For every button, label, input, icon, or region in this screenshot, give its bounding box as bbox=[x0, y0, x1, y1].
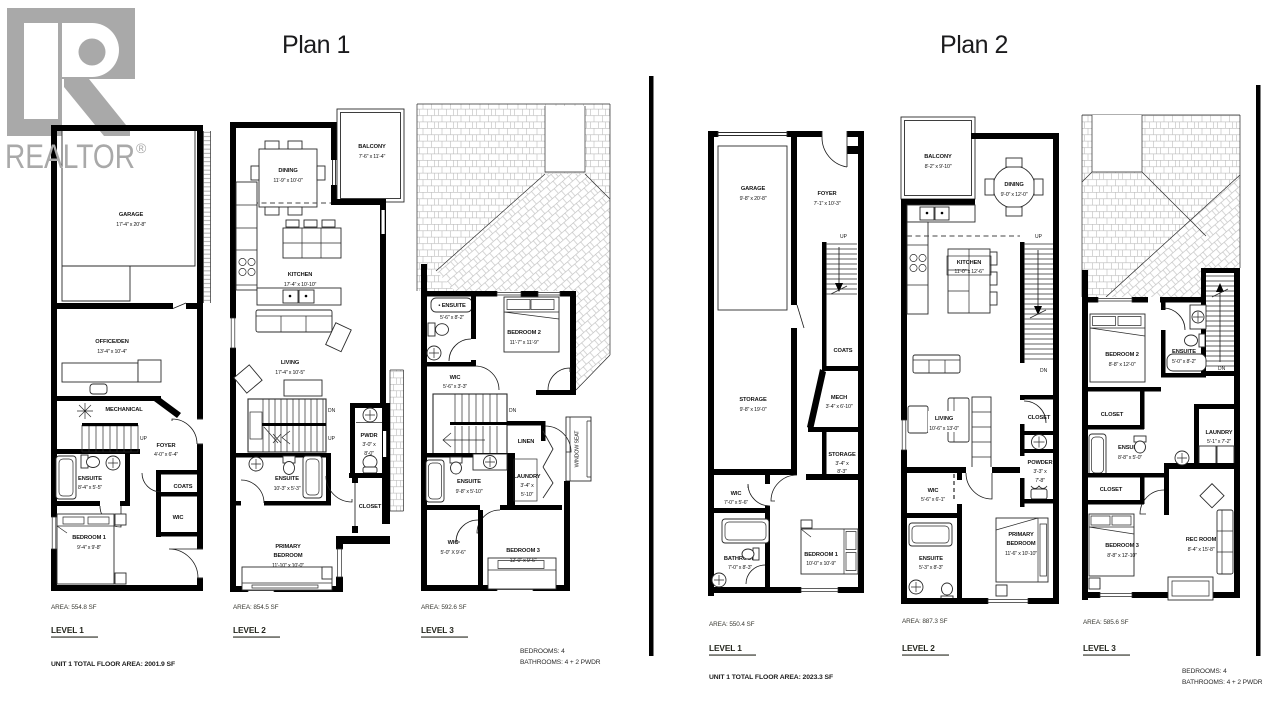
svg-text:11'-10" x 10'-0": 11'-10" x 10'-0" bbox=[272, 563, 304, 569]
svg-text:10'-3" x 5'-3": 10'-3" x 5'-3" bbox=[274, 486, 301, 492]
svg-text:DINING: DINING bbox=[1004, 182, 1024, 188]
svg-text:13'-4" x 10'-4": 13'-4" x 10'-4" bbox=[97, 349, 127, 355]
svg-text:17'-4" x 10'-5": 17'-4" x 10'-5" bbox=[275, 370, 305, 376]
svg-text:AREA: 592.6 SF: AREA: 592.6 SF bbox=[421, 604, 467, 611]
svg-text:DINING: DINING bbox=[278, 168, 298, 174]
svg-text:9'-4" x 9'-8": 9'-4" x 9'-8" bbox=[77, 545, 101, 551]
svg-text:Plan 2: Plan 2 bbox=[940, 31, 1008, 59]
svg-text:BEDROOM 1: BEDROOM 1 bbox=[804, 552, 838, 558]
svg-text:5'-10": 5'-10" bbox=[521, 492, 534, 498]
svg-text:REALTOR: REALTOR bbox=[5, 138, 135, 176]
svg-text:BEDROOM 1: BEDROOM 1 bbox=[72, 535, 106, 541]
svg-text:3'-0" x: 3'-0" x bbox=[362, 442, 376, 448]
svg-text:LIVING: LIVING bbox=[281, 360, 300, 366]
svg-text:REC ROOM: REC ROOM bbox=[1186, 537, 1217, 543]
svg-text:8'-8" x 12'-10": 8'-8" x 12'-10" bbox=[1107, 553, 1137, 559]
svg-text:MECHANICAL: MECHANICAL bbox=[105, 407, 143, 413]
svg-text:AREA: 550.4 SF: AREA: 550.4 SF bbox=[709, 621, 755, 628]
svg-text:LIVING: LIVING bbox=[935, 416, 954, 422]
svg-text:BALCONY: BALCONY bbox=[358, 144, 386, 150]
svg-text:WINDOW SEAT: WINDOW SEAT bbox=[575, 430, 581, 468]
svg-text:WIC: WIC bbox=[173, 515, 184, 521]
svg-text:11'-0" x 12'-6": 11'-0" x 12'-6" bbox=[954, 269, 984, 275]
svg-text:DN: DN bbox=[328, 408, 336, 414]
svg-text:17'-4" x 20'-8": 17'-4" x 20'-8" bbox=[116, 222, 146, 228]
svg-text:5'-3" x 8'-3": 5'-3" x 8'-3" bbox=[919, 565, 943, 571]
svg-text:5'-6" x 3'-3": 5'-6" x 3'-3" bbox=[443, 384, 467, 390]
svg-text:AREA: 585.6 SF: AREA: 585.6 SF bbox=[1083, 619, 1129, 626]
svg-text:5'-6" x 6'-1": 5'-6" x 6'-1" bbox=[921, 497, 945, 503]
svg-text:CLOSET: CLOSET bbox=[1101, 412, 1124, 418]
svg-text:WIC: WIC bbox=[450, 375, 461, 381]
svg-text:8'-4" x 5'-5": 8'-4" x 5'-5" bbox=[78, 485, 102, 491]
svg-text:• ENSUITE: • ENSUITE bbox=[438, 303, 466, 309]
svg-text:8'-8" x 12'-0": 8'-8" x 12'-0" bbox=[1109, 362, 1136, 368]
svg-text:UP: UP bbox=[328, 436, 336, 442]
svg-text:®: ® bbox=[136, 140, 147, 156]
svg-text:Plan 1: Plan 1 bbox=[282, 31, 350, 59]
svg-text:3'-3" x: 3'-3" x bbox=[1033, 469, 1047, 475]
svg-text:DN: DN bbox=[509, 408, 517, 414]
svg-text:9'-0" x 12'-0": 9'-0" x 12'-0" bbox=[1001, 192, 1028, 198]
svg-text:8'-2" x 9'-10": 8'-2" x 9'-10" bbox=[925, 164, 952, 170]
svg-text:STORAGE: STORAGE bbox=[739, 397, 767, 403]
svg-text:GARAGE: GARAGE bbox=[741, 186, 766, 192]
svg-text:BATHROOMS: 4 + 2 PWDR: BATHROOMS: 4 + 2 PWDR bbox=[1182, 679, 1263, 686]
svg-text:3'-4" x 6'-10": 3'-4" x 6'-10" bbox=[826, 404, 853, 410]
svg-text:WIC: WIC bbox=[731, 491, 742, 497]
svg-text:DN: DN bbox=[1218, 366, 1226, 372]
svg-text:LEVEL 1: LEVEL 1 bbox=[709, 643, 742, 653]
svg-text:17'-4" x 10'-10": 17'-4" x 10'-10" bbox=[284, 282, 317, 288]
svg-text:BEDROOM: BEDROOM bbox=[273, 553, 302, 559]
svg-text:5'-6" x 8'-2": 5'-6" x 8'-2" bbox=[440, 315, 464, 321]
svg-text:AREA: 554.8 SF: AREA: 554.8 SF bbox=[51, 604, 97, 611]
svg-text:STORAGE: STORAGE bbox=[828, 452, 856, 458]
svg-text:CLOSET: CLOSET bbox=[1100, 487, 1123, 493]
svg-text:BEDROOMS: 4: BEDROOMS: 4 bbox=[1182, 668, 1227, 675]
svg-text:DN: DN bbox=[1040, 368, 1048, 374]
svg-text:8'-8" x 5'-0": 8'-8" x 5'-0" bbox=[1118, 455, 1142, 461]
svg-text:10'-0" x 10'-9": 10'-0" x 10'-9" bbox=[806, 561, 836, 567]
svg-text:UP: UP bbox=[1035, 234, 1043, 240]
svg-text:8'-4" x 15'-8": 8'-4" x 15'-8" bbox=[1188, 547, 1215, 553]
svg-text:LAUNDRY: LAUNDRY bbox=[1206, 430, 1233, 436]
svg-text:7'-0" x 5'-6": 7'-0" x 5'-6" bbox=[724, 500, 748, 506]
svg-text:9'-8" x 20'-8": 9'-8" x 20'-8" bbox=[740, 196, 767, 202]
svg-text:POWDER: POWDER bbox=[1028, 460, 1053, 466]
svg-text:ENSUITE: ENSUITE bbox=[919, 556, 943, 562]
svg-text:UNIT 1 TOTAL FLOOR AREA: 2001.: UNIT 1 TOTAL FLOOR AREA: 2001.9 SF bbox=[51, 661, 175, 668]
svg-text:ENSUITE: ENSUITE bbox=[1172, 349, 1196, 355]
svg-text:BALCONY: BALCONY bbox=[924, 154, 952, 160]
svg-text:7'-1" x 10'-3": 7'-1" x 10'-3" bbox=[814, 201, 841, 207]
svg-text:AREA: 887.3 SF: AREA: 887.3 SF bbox=[902, 618, 948, 625]
svg-text:GARAGE: GARAGE bbox=[119, 212, 144, 218]
svg-text:11'-6" x 10'-10": 11'-6" x 10'-10" bbox=[1005, 551, 1037, 557]
svg-text:AREA: 854.5 SF: AREA: 854.5 SF bbox=[233, 604, 279, 611]
svg-text:LEVEL 2: LEVEL 2 bbox=[233, 625, 266, 635]
svg-text:ENSUITE: ENSUITE bbox=[275, 476, 299, 482]
svg-text:4'-0" x 6'-4": 4'-0" x 6'-4" bbox=[154, 452, 178, 458]
svg-text:BEDROOM 2: BEDROOM 2 bbox=[507, 330, 541, 336]
svg-text:9'-8" x 19'-0": 9'-8" x 19'-0" bbox=[740, 407, 767, 413]
svg-text:CLOSET: CLOSET bbox=[1028, 415, 1051, 421]
svg-text:LEVEL 3: LEVEL 3 bbox=[421, 625, 454, 635]
svg-text:5'-0" X 9'-6": 5'-0" X 9'-6" bbox=[441, 550, 466, 556]
svg-text:BEDROOMS: 4: BEDROOMS: 4 bbox=[520, 648, 565, 655]
svg-text:10'-6" x 13'-0": 10'-6" x 13'-0" bbox=[929, 426, 959, 432]
svg-text:7'-6" x 11'-4": 7'-6" x 11'-4" bbox=[359, 154, 386, 160]
svg-text:LEVEL 2: LEVEL 2 bbox=[902, 643, 935, 653]
svg-text:WIC: WIC bbox=[928, 488, 939, 494]
svg-text:BEDROOM 3: BEDROOM 3 bbox=[1105, 543, 1139, 549]
svg-text:LAUNDRY: LAUNDRY bbox=[514, 474, 541, 480]
svg-text:ENSUITE: ENSUITE bbox=[457, 479, 481, 485]
svg-text:5'-0" x 8'-2": 5'-0" x 8'-2" bbox=[1172, 359, 1196, 365]
svg-text:BATHROOMS: 4 + 2 PWDR: BATHROOMS: 4 + 2 PWDR bbox=[520, 659, 601, 666]
svg-text:BEDROOM: BEDROOM bbox=[1006, 541, 1035, 547]
svg-text:CLOSET: CLOSET bbox=[359, 504, 382, 510]
svg-text:WIC: WIC bbox=[448, 540, 459, 546]
svg-text:OFFICE/DEN: OFFICE/DEN bbox=[95, 339, 128, 345]
svg-text:ENSUITE: ENSUITE bbox=[78, 476, 102, 482]
svg-text:COATS: COATS bbox=[834, 348, 853, 354]
svg-text:BEDROOM 2: BEDROOM 2 bbox=[1105, 352, 1139, 358]
svg-text:9'-8" x 5'-10": 9'-8" x 5'-10" bbox=[456, 489, 483, 495]
svg-text:FOYER: FOYER bbox=[156, 443, 175, 449]
svg-text:PWDR: PWDR bbox=[361, 433, 378, 439]
svg-text:FOYER: FOYER bbox=[817, 191, 836, 197]
svg-text:UNIT 1 TOTAL FLOOR AREA: 2023.: UNIT 1 TOTAL FLOOR AREA: 2023.3 SF bbox=[709, 674, 833, 681]
svg-text:LEVEL 3: LEVEL 3 bbox=[1083, 643, 1116, 653]
svg-text:BEDROOM 3: BEDROOM 3 bbox=[506, 548, 540, 554]
svg-text:7'-0" x 8'-3": 7'-0" x 8'-3" bbox=[728, 565, 752, 571]
svg-text:11'-7" x 11'-9": 11'-7" x 11'-9" bbox=[510, 340, 539, 346]
svg-text:UP: UP bbox=[840, 234, 848, 240]
svg-text:KITCHEN: KITCHEN bbox=[957, 260, 982, 266]
svg-text:11'-9" x 10'-0": 11'-9" x 10'-0" bbox=[273, 178, 303, 184]
svg-text:MECH: MECH bbox=[831, 395, 847, 401]
svg-text:3'-4" x: 3'-4" x bbox=[520, 483, 534, 489]
svg-text:COATS: COATS bbox=[174, 484, 193, 490]
svg-text:7'-8": 7'-8" bbox=[1035, 478, 1045, 484]
svg-text:LEVEL 1: LEVEL 1 bbox=[51, 625, 84, 635]
svg-text:5'-1" x 7'-2": 5'-1" x 7'-2" bbox=[1207, 439, 1231, 445]
svg-text:UP: UP bbox=[140, 436, 148, 442]
svg-text:3'-4" x: 3'-4" x bbox=[835, 461, 849, 467]
svg-text:12'-0" x 9'-6": 12'-0" x 9'-6" bbox=[510, 558, 537, 564]
svg-text:PRIMARY: PRIMARY bbox=[275, 544, 301, 550]
svg-text:PRIMARY: PRIMARY bbox=[1008, 532, 1034, 538]
svg-text:KITCHEN: KITCHEN bbox=[288, 272, 313, 278]
svg-text:LINEN: LINEN bbox=[518, 439, 535, 445]
